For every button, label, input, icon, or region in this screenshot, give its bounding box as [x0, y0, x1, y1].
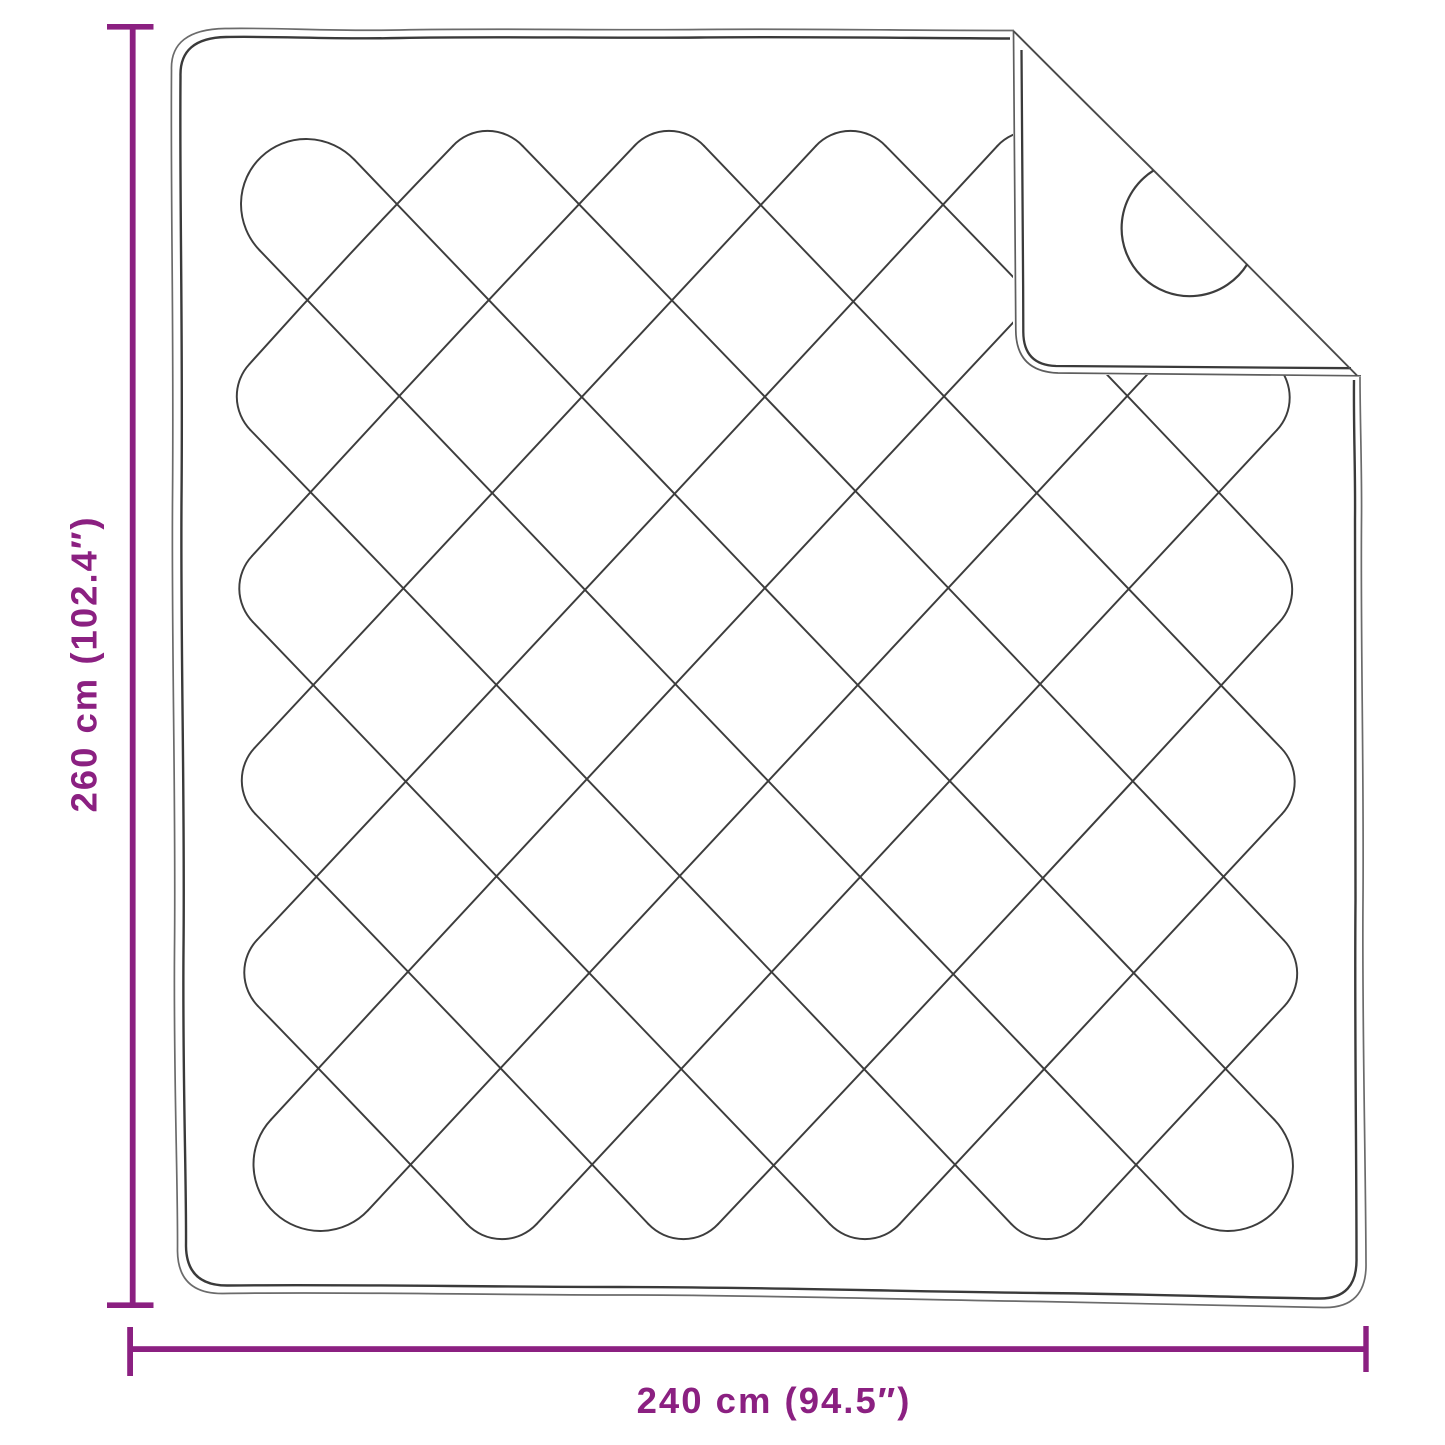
svg-text:240 cm (94.5″): 240 cm (94.5″) — [637, 1380, 912, 1421]
svg-text:260 cm (102.4″): 260 cm (102.4″) — [64, 515, 105, 812]
